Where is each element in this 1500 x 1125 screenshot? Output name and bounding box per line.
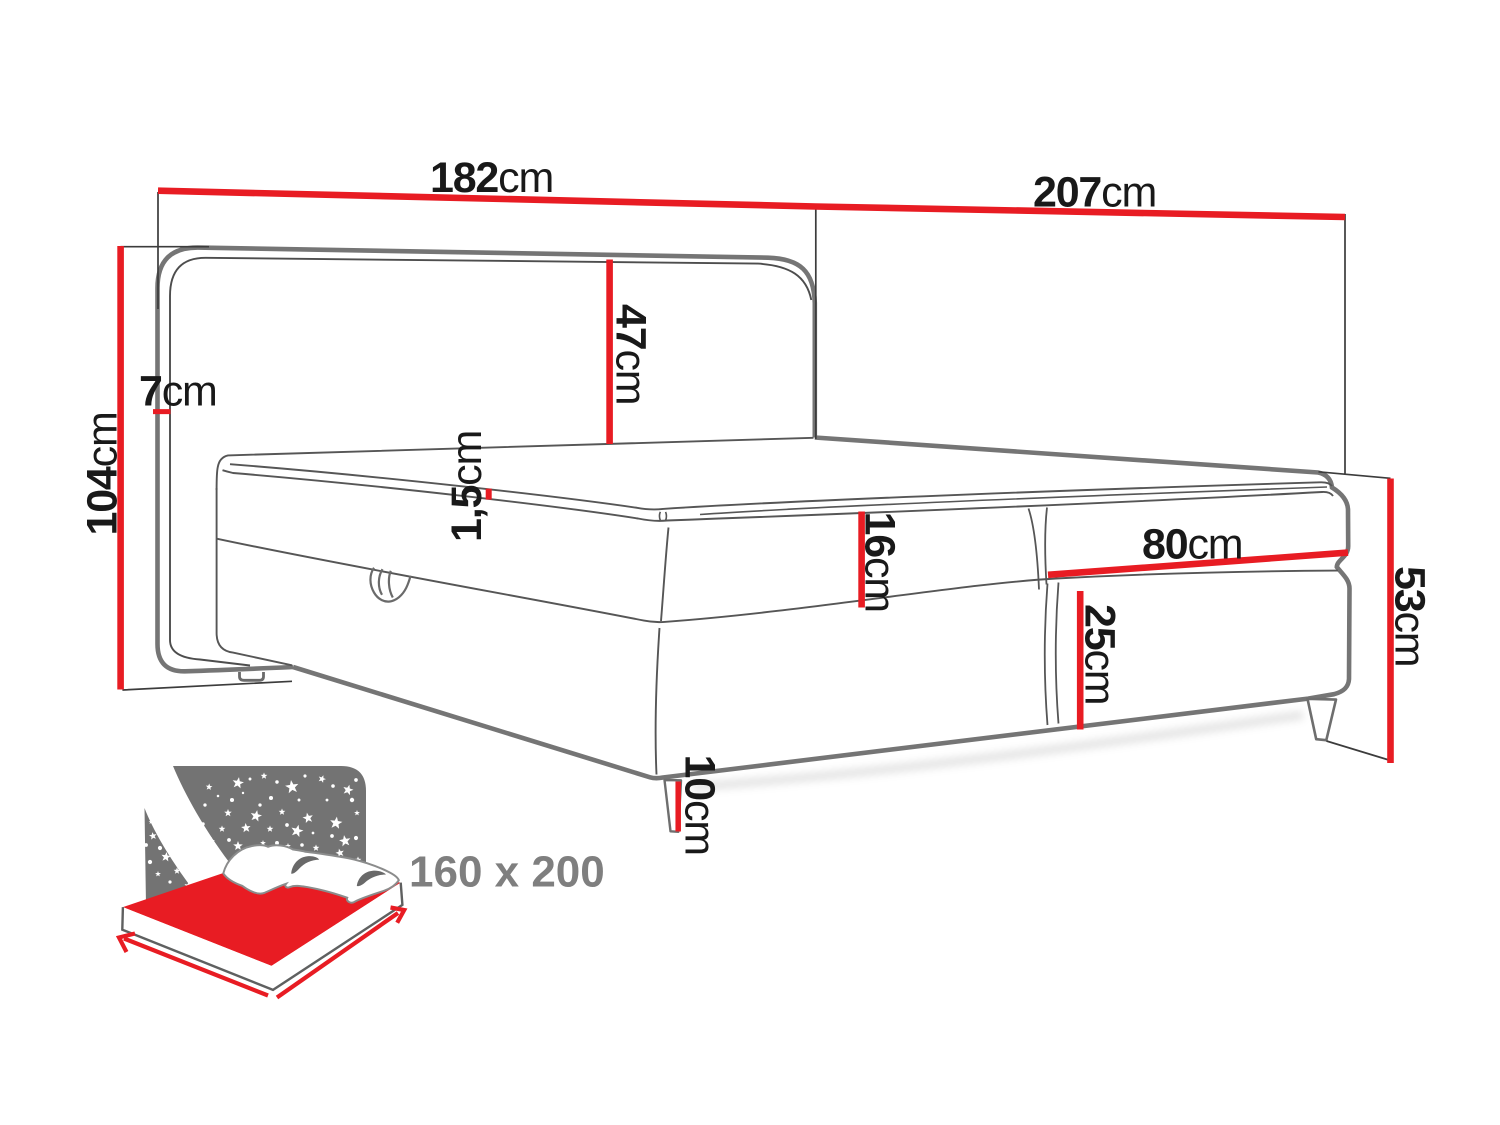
svg-text:104cm: 104cm <box>79 412 127 535</box>
svg-text:47cm: 47cm <box>607 304 655 404</box>
svg-text:1,5cm: 1,5cm <box>443 431 491 542</box>
svg-text:207cm: 207cm <box>1033 169 1156 217</box>
svg-text:53cm: 53cm <box>1386 566 1434 666</box>
svg-text:80cm: 80cm <box>1142 521 1242 569</box>
svg-text:10cm: 10cm <box>676 755 724 855</box>
svg-text:7cm: 7cm <box>139 368 217 416</box>
svg-text:160 x 200: 160 x 200 <box>409 848 605 897</box>
svg-text:25cm: 25cm <box>1076 604 1124 704</box>
svg-text:16cm: 16cm <box>856 512 904 612</box>
svg-text:182cm: 182cm <box>430 154 553 202</box>
